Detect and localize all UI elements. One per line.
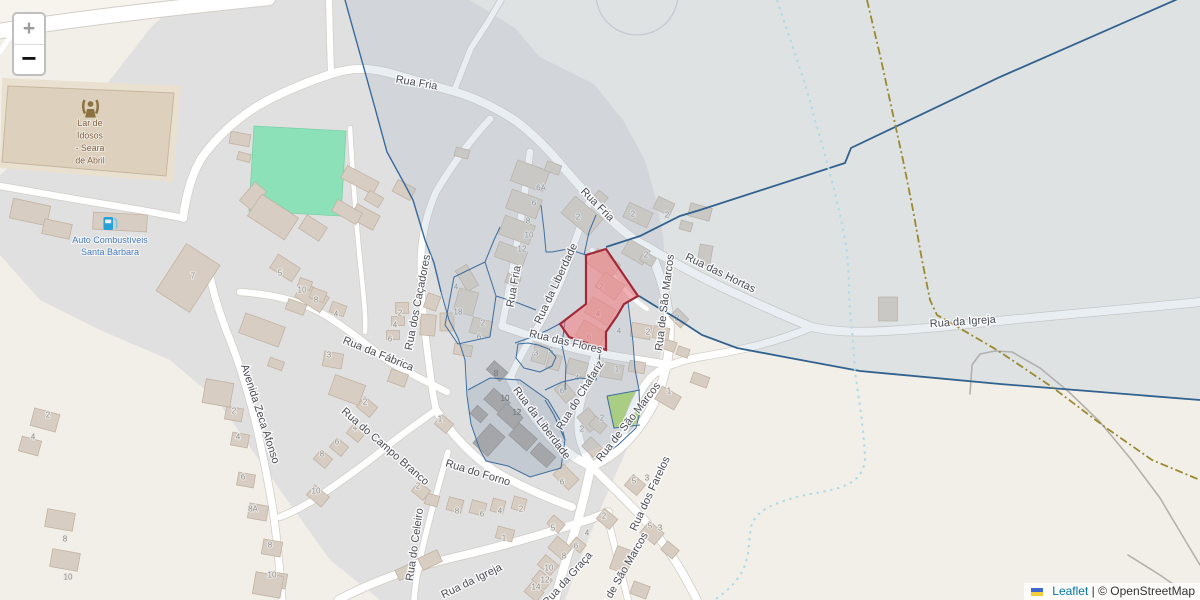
- svg-text:Auto Combustíveis: Auto Combustíveis: [72, 235, 148, 245]
- svg-text:6: 6: [480, 510, 485, 519]
- svg-text:Santa Bárbara: Santa Bárbara: [81, 247, 139, 257]
- svg-text:2: 2: [519, 505, 524, 514]
- svg-text:14: 14: [532, 583, 541, 592]
- svg-text:4: 4: [236, 433, 241, 442]
- svg-text:4: 4: [31, 433, 36, 442]
- svg-text:8: 8: [314, 296, 319, 305]
- svg-text:8: 8: [63, 535, 68, 544]
- svg-text:10: 10: [545, 564, 554, 573]
- svg-text:6: 6: [560, 478, 565, 487]
- svg-text:8: 8: [320, 450, 325, 459]
- svg-text:4: 4: [498, 507, 503, 516]
- svg-text:8: 8: [268, 541, 273, 550]
- svg-text:5: 5: [551, 524, 556, 533]
- svg-text:1: 1: [502, 534, 507, 543]
- svg-text:- Seara: - Seara: [76, 143, 105, 153]
- svg-text:5: 5: [632, 477, 637, 486]
- svg-text:12: 12: [541, 576, 550, 585]
- svg-text:5: 5: [648, 522, 653, 531]
- svg-text:2: 2: [602, 512, 607, 521]
- svg-text:Ídosos: Ídosos: [77, 131, 104, 141]
- svg-text:4: 4: [334, 310, 339, 319]
- svg-text:3: 3: [327, 351, 332, 360]
- svg-text:8: 8: [494, 369, 499, 378]
- svg-text:10: 10: [268, 571, 277, 580]
- svg-text:10: 10: [298, 286, 307, 295]
- svg-text:4: 4: [393, 321, 398, 330]
- svg-text:5: 5: [278, 269, 283, 278]
- svg-text:1: 1: [667, 387, 672, 396]
- svg-text:10: 10: [501, 394, 510, 403]
- svg-text:8: 8: [562, 552, 567, 561]
- svg-text:10: 10: [64, 573, 73, 582]
- svg-text:8A: 8A: [248, 505, 258, 514]
- svg-text:10: 10: [312, 487, 321, 496]
- svg-text:1: 1: [438, 415, 443, 424]
- svg-text:2: 2: [46, 411, 51, 420]
- svg-text:6: 6: [335, 438, 340, 447]
- svg-text:6: 6: [574, 542, 579, 551]
- svg-text:12: 12: [513, 408, 522, 417]
- svg-text:2: 2: [398, 309, 403, 318]
- svg-text:6: 6: [241, 473, 246, 482]
- svg-text:3: 3: [658, 524, 663, 533]
- svg-text:2: 2: [232, 407, 237, 416]
- svg-text:4: 4: [585, 529, 590, 538]
- svg-text:7: 7: [191, 272, 196, 281]
- svg-text:de Abril: de Abril: [75, 156, 104, 166]
- svg-text:2: 2: [363, 398, 368, 407]
- svg-text:6: 6: [388, 335, 393, 344]
- svg-text:Lar de: Lar de: [78, 118, 103, 128]
- svg-text:8: 8: [455, 507, 460, 516]
- svg-text:2: 2: [646, 328, 651, 337]
